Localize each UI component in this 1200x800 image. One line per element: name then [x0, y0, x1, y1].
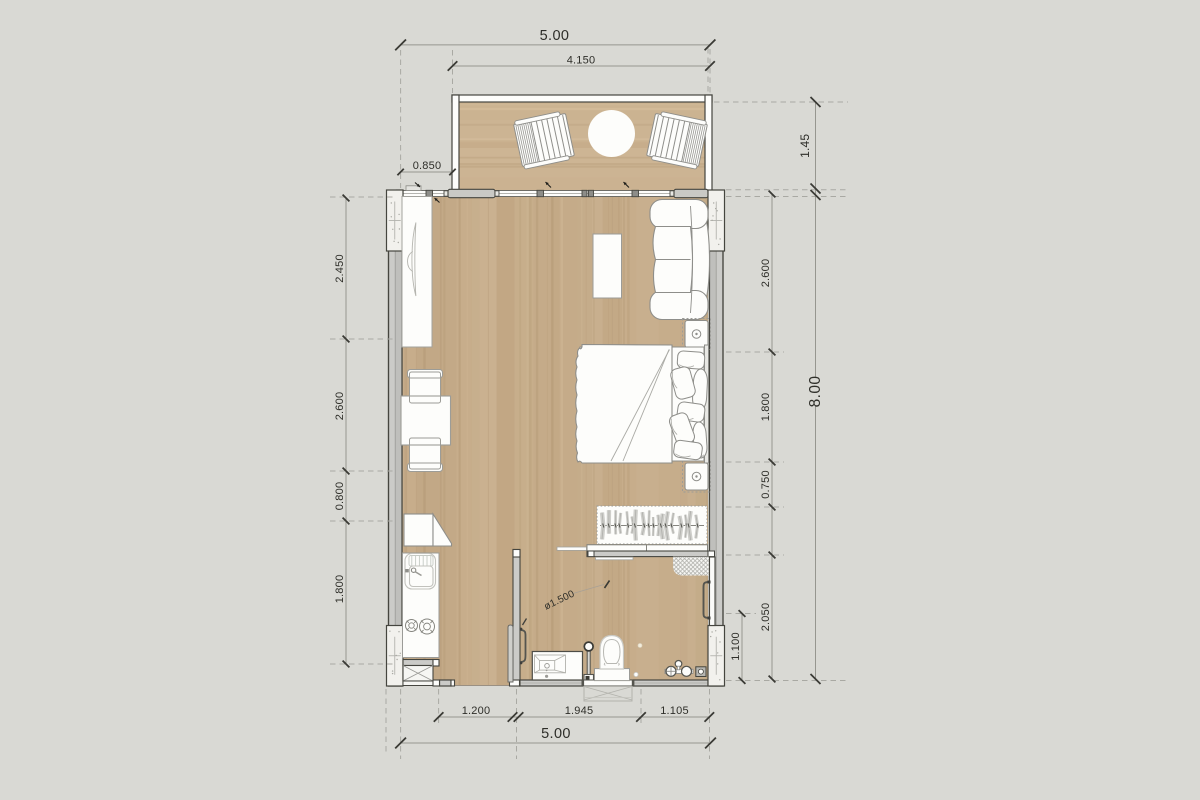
svg-text:1.800: 1.800	[334, 575, 346, 604]
svg-text:4.150: 4.150	[567, 54, 596, 66]
svg-text:0.750: 0.750	[760, 470, 772, 499]
svg-text:8.00: 8.00	[807, 376, 824, 408]
svg-text:1.45: 1.45	[798, 134, 812, 158]
svg-text:0.850: 0.850	[413, 160, 442, 172]
svg-text:1.105: 1.105	[660, 705, 689, 717]
svg-text:5.00: 5.00	[540, 28, 570, 44]
svg-text:2.450: 2.450	[334, 254, 346, 283]
svg-text:1.800: 1.800	[760, 393, 772, 422]
svg-text:5.00: 5.00	[541, 726, 571, 742]
svg-text:2.600: 2.600	[760, 259, 772, 288]
svg-text:0.800: 0.800	[334, 482, 346, 511]
svg-text:2.050: 2.050	[760, 603, 772, 632]
svg-text:1.100: 1.100	[730, 632, 742, 661]
svg-text:1.945: 1.945	[565, 705, 594, 717]
svg-text:2.600: 2.600	[334, 392, 346, 421]
svg-text:1.200: 1.200	[462, 705, 491, 717]
